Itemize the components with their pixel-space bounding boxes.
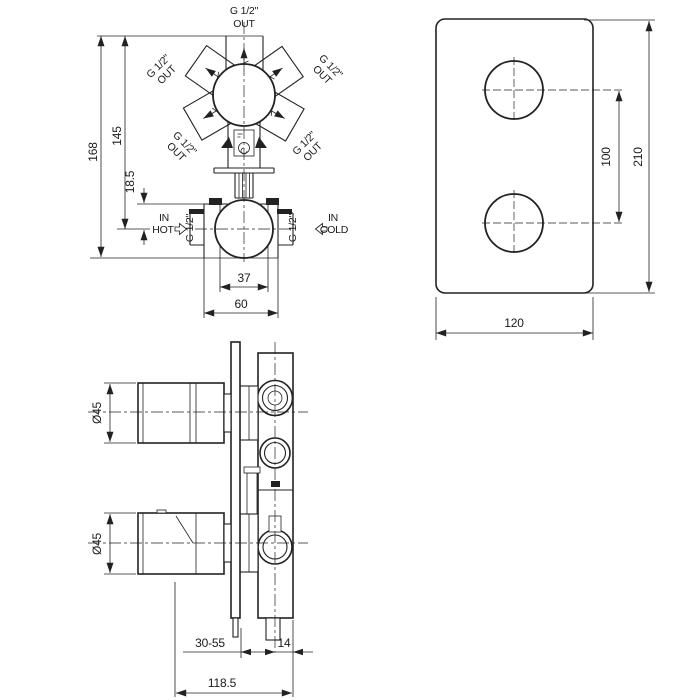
flow-arrow-icon [205, 68, 217, 77]
dim-inlet-offset-label: 18.5 [123, 170, 137, 193]
side-view: Ø45 Ø45 30-55 14 118.5 [88, 342, 313, 697]
trim-plate-edge [231, 342, 240, 618]
flow-arrow-icon [203, 111, 216, 119]
cold-inlet-size-label: G 1/2" [287, 213, 299, 242]
flow-arrow-icon [272, 111, 285, 119]
front-view: 168 145 18.5 37 60 G 1/2" OUT G 1/2" OUT… [86, 5, 349, 318]
outlet-top-dir-label: OUT [233, 18, 255, 30]
cold-inlet-line2: COLD [320, 224, 349, 236]
technical-drawing-page: 168 145 18.5 37 60 G 1/2" OUT G 1/2" OUT… [0, 0, 700, 700]
dim-plate-height-label: 210 [631, 147, 645, 167]
dim-install-depth-range-label: 30-55 [195, 636, 225, 650]
hot-inlet-line2: HOT [152, 224, 174, 236]
dim-cartridge-width-label: 37 [238, 271, 251, 285]
outlet-top-size-label: G 1/2" [230, 5, 259, 17]
thermostat-knob [138, 383, 224, 443]
dim-center-offset-label: 14 [278, 636, 291, 650]
dim-height-total-label: 168 [86, 142, 100, 162]
dim-knob-top-diameter-label: Ø45 [90, 401, 104, 424]
thermostatic-mixer-dimension-drawing: 168 145 18.5 37 60 G 1/2" OUT G 1/2" OUT… [0, 0, 700, 700]
cold-inlet-line1: IN [328, 212, 338, 224]
dim-height-to-inlet-label: 145 [110, 126, 124, 146]
weld-wedge-right [255, 137, 267, 148]
dim-plate-width-label: 120 [504, 316, 524, 330]
dim-housing-width-label: 60 [235, 297, 248, 311]
plate-view: 100 210 120 [436, 19, 655, 340]
hot-inlet-size-label: G 1/2" [184, 213, 196, 242]
stop-screw-column [247, 473, 257, 514]
dim-knob-bottom-diameter-label: Ø45 [90, 532, 104, 555]
flow-arrow-icon [270, 68, 282, 77]
lever-handle [138, 513, 224, 574]
cold-inlet-label-group: G 1/2" IN COLD [287, 212, 349, 242]
hot-inlet-line1: IN [159, 212, 169, 224]
dim-hole-spacing-label: 100 [599, 147, 613, 167]
screw-head [271, 481, 280, 487]
weld-wedge-left [221, 137, 233, 148]
hot-inlet-label-group: IN HOT G 1/2" [152, 212, 196, 242]
dim-total-depth-label: 118.5 [208, 676, 237, 690]
